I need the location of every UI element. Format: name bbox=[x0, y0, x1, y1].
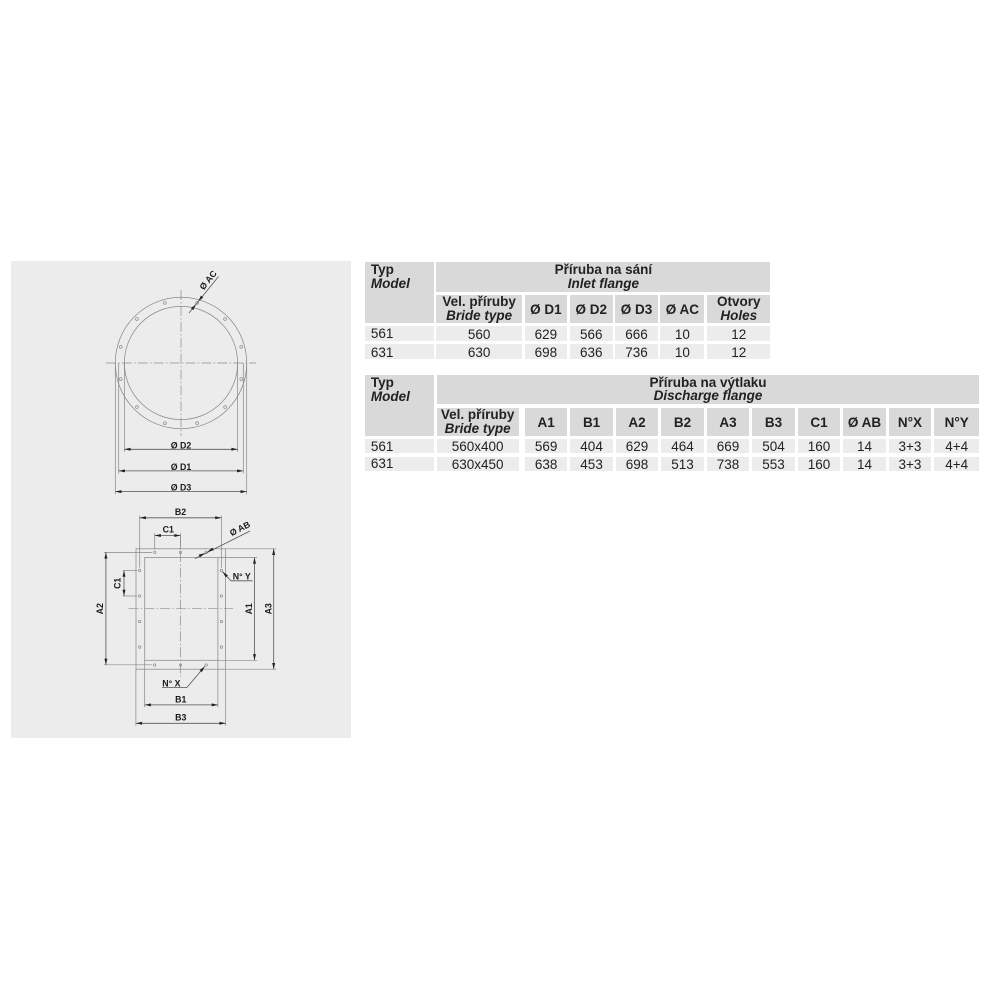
svg-text:C1: C1 bbox=[163, 525, 174, 535]
svg-text:B2: B2 bbox=[175, 507, 186, 517]
svg-text:A1: A1 bbox=[244, 603, 254, 614]
svg-text:B1: B1 bbox=[175, 694, 186, 704]
svg-text:N° Y: N° Y bbox=[233, 571, 251, 581]
svg-text:N° X: N° X bbox=[162, 678, 180, 688]
svg-text:Ø D1: Ø D1 bbox=[171, 462, 192, 472]
svg-text:B3: B3 bbox=[175, 713, 186, 723]
svg-text:Ø D2: Ø D2 bbox=[171, 440, 192, 450]
svg-text:C1: C1 bbox=[113, 578, 123, 589]
svg-text:Ø D3: Ø D3 bbox=[171, 482, 192, 492]
svg-text:A3: A3 bbox=[264, 603, 274, 614]
svg-text:A2: A2 bbox=[95, 603, 105, 614]
svg-text:Ø AB: Ø AB bbox=[228, 519, 252, 538]
